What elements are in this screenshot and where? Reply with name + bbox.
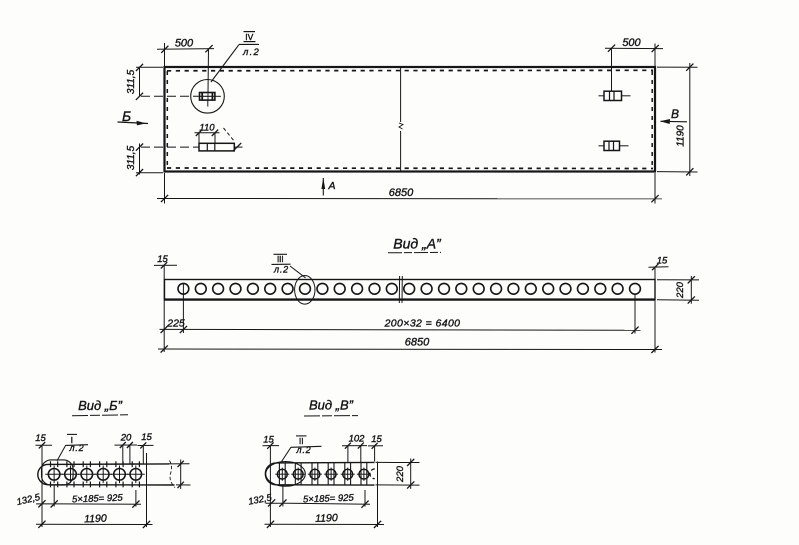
svg-text:5×185= 925: 5×185= 925 [72, 493, 124, 506]
svg-text:110: 110 [199, 123, 215, 134]
svg-text:Вид „А”: Вид „А” [393, 236, 442, 252]
svg-text:20: 20 [120, 433, 132, 444]
svg-text:Вид „Б”: Вид „Б” [78, 398, 122, 413]
svg-text:л.2: л.2 [296, 445, 312, 455]
svg-text:500: 500 [175, 38, 194, 50]
svg-text:220: 220 [395, 465, 406, 483]
svg-text:Б: Б [122, 108, 131, 124]
svg-text:л.2: л.2 [273, 265, 289, 275]
svg-text:15: 15 [141, 432, 152, 443]
svg-text:1190: 1190 [676, 125, 687, 147]
svg-text:6850: 6850 [405, 337, 430, 349]
svg-text:220: 220 [675, 281, 686, 299]
svg-text:А: А [327, 180, 335, 192]
svg-text:311,5: 311,5 [126, 69, 137, 94]
svg-text:1190: 1190 [315, 512, 338, 525]
svg-text:15: 15 [657, 256, 668, 267]
svg-text:л.2: л.2 [69, 443, 85, 453]
svg-text:III: III [277, 255, 284, 264]
svg-text:6850: 6850 [389, 187, 414, 199]
svg-text:1190: 1190 [84, 513, 107, 526]
svg-text:200×32 = 6400: 200×32 = 6400 [384, 318, 461, 330]
svg-text:225: 225 [166, 318, 185, 330]
svg-text:Вид „В”: Вид „В” [309, 398, 354, 413]
svg-text:л.2: л.2 [242, 47, 260, 58]
svg-text:311,5: 311,5 [126, 145, 137, 170]
svg-text:500: 500 [622, 37, 641, 49]
svg-text:В: В [671, 107, 679, 121]
svg-text:IV: IV [245, 32, 253, 42]
